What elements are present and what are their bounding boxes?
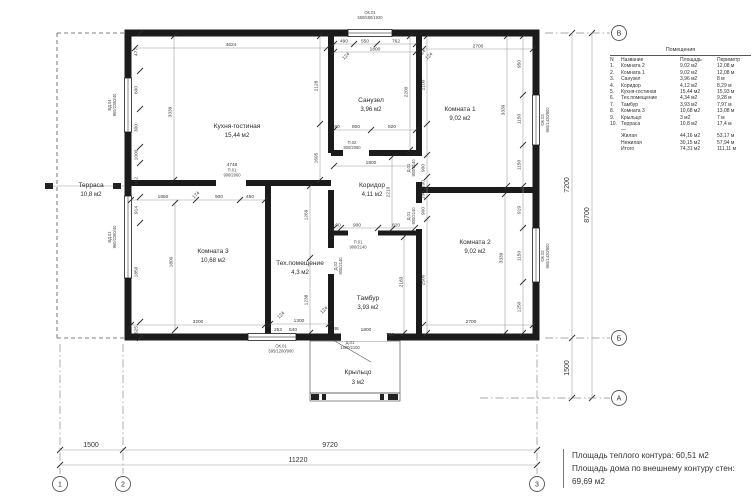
room-label-room1: Комната 1 <box>444 106 476 113</box>
room-label-kitchen: Кухня-гостиная <box>214 123 261 130</box>
dim-label: 914 <box>134 206 140 214</box>
dim-label: 1850 <box>158 194 169 200</box>
cell-room-name: Терраса <box>621 121 680 127</box>
dim-label: 2700 <box>466 319 477 325</box>
dim-label: 762 <box>392 39 400 45</box>
summary-outer-contour: Площадь дома по внешнему контуру стен: 6… <box>572 462 752 488</box>
dim-label: 1250 <box>517 301 523 312</box>
dim-label: 300 <box>134 124 140 132</box>
cell-perimeter: 17,4 м <box>717 121 751 127</box>
dim-label: 1238 <box>304 294 310 305</box>
door-tag: 800/2060 <box>343 145 361 150</box>
cell-total-perimeter: 111,11 м <box>717 146 751 152</box>
dim-label: 4624 <box>226 42 237 48</box>
dim-label: 2183 <box>399 276 405 287</box>
room-label-tambour: Тамбур <box>357 294 380 302</box>
window-tag: 950/1420/900 <box>545 107 550 133</box>
floor-plan-sheet: 1 2 3 В Б А 1500 9720 11220 7200 8700 15… <box>0 0 753 502</box>
cell-total-area: 74,31 м2 <box>680 146 717 152</box>
axis-label: 3 <box>535 482 539 489</box>
dim-label: 1800 <box>361 327 372 333</box>
dim-label: 124 <box>341 51 351 61</box>
dim-label: 900 <box>421 207 427 215</box>
axis-label: 2 <box>121 482 125 489</box>
dim-label: 124 <box>319 305 329 315</box>
dim-label: 1150 <box>517 160 523 171</box>
dim-label: 80 <box>334 124 340 130</box>
room-area-tambour: 3,93 м2 <box>357 304 379 311</box>
dim-label: 2700 <box>473 44 484 50</box>
dim-label: 3339 <box>501 104 507 115</box>
dim-label: 1269 <box>304 209 310 220</box>
dim-label: 1000 <box>134 149 140 160</box>
dim-label: 46 <box>333 326 339 332</box>
overall-dimensions: 1500 9720 11220 7200 8700 1500 <box>83 177 591 464</box>
room-area-kitchen: 15,44 м2 <box>225 132 250 139</box>
room-label-tech: Тех.помещение <box>276 260 324 267</box>
dim-label: 1150 <box>517 114 523 125</box>
dim-label: 9720 <box>322 442 338 449</box>
dim-label: 450 <box>246 194 254 200</box>
axis-label: А <box>617 396 622 403</box>
dim-label: 820 <box>392 223 400 229</box>
area-summary: Площадь теплого контура: 60,51 м2 Площад… <box>563 449 752 488</box>
dim-label: 1300 <box>294 318 305 324</box>
dim-label: 2210 <box>386 186 392 197</box>
dim-label: 1500 <box>83 442 99 449</box>
dim-label: 1800 <box>366 160 377 166</box>
room-label-porch: Крыльцо <box>345 369 372 376</box>
table-total-row: Итого 74,31 м2 111,11 м <box>610 146 751 152</box>
dim-label: 124 <box>276 310 286 320</box>
cell-area: 10,8 м2 <box>680 121 717 127</box>
dim-label: 2200 <box>404 86 410 97</box>
room-label-corridor: Коридор <box>359 182 385 189</box>
door-tag: 800/2140 <box>338 257 343 275</box>
dim-label: 1500 <box>564 360 571 376</box>
dim-label: 3339 <box>168 106 174 117</box>
door-tag: 900/2140 <box>411 159 416 177</box>
axis-label: 1 <box>58 482 62 489</box>
cell-total-name: Итого <box>621 146 680 152</box>
room-area-porch: 3 м2 <box>352 379 365 386</box>
room-schedule-table: Помещения N Название Площадь Периметр 1.… <box>610 47 751 153</box>
dim-label: 2128 <box>314 80 320 91</box>
dim-label: 950 <box>517 60 523 68</box>
dim-label: 1800 <box>169 256 175 267</box>
room-area-room2: 9,02 м2 <box>464 248 486 255</box>
dim-label: 2100 <box>421 79 427 90</box>
dim-label: 90 <box>335 223 341 229</box>
room-label-bath: Санузел <box>358 97 384 104</box>
room-area-bath: 3,96 м2 <box>360 106 382 113</box>
dim-label: 800 <box>352 124 360 130</box>
dim-label: 919 <box>517 206 523 214</box>
dim-label: 550 <box>361 39 369 45</box>
cell-number: 10. <box>610 121 621 127</box>
door-tag: 900/2060 <box>223 173 241 178</box>
room-label-room3: Комната 3 <box>197 248 229 255</box>
room-area-tech: 4,3 м2 <box>291 269 309 276</box>
dim-label: 1850 <box>134 266 140 277</box>
dim-label: 1150 <box>517 251 523 262</box>
dim-label: 162 <box>134 177 140 185</box>
door-tag: 900/2140 <box>349 245 367 250</box>
dim-label: 1695 <box>314 152 320 163</box>
dim-label: 8700 <box>584 207 591 223</box>
door-tag: 1600/2100 <box>340 345 360 350</box>
table-totals: Жилая 44,16 м2 53,17 м Нежилая 30,15 м2 … <box>610 133 751 152</box>
dim-label: 7200 <box>564 177 571 193</box>
door-tag: 960/2280/40 <box>112 93 117 116</box>
window-tag: 950/1420/900 <box>545 243 550 269</box>
axis-label: Б <box>617 336 622 343</box>
dim-label: 477 <box>134 48 140 56</box>
room-area-room1: 9,02 м2 <box>449 115 471 122</box>
dim-label: 490 <box>340 39 348 45</box>
dim-label: 540 <box>289 327 297 333</box>
dim-label: 900 <box>215 194 223 200</box>
dimension-lines <box>57 30 595 468</box>
dim-label: 252 <box>274 327 282 333</box>
dim-label: 625 <box>134 326 140 334</box>
dim-label: 174 <box>191 190 201 200</box>
dim-label: 920 <box>388 124 396 130</box>
room-area-corridor: 4,11 м2 <box>362 191 383 198</box>
room-label-terrace: Терраса <box>78 182 104 189</box>
dim-label: 2500 <box>421 274 427 285</box>
dim-label: 100 <box>421 191 427 199</box>
dim-label: 11220 <box>289 457 308 464</box>
table-row: 10. Терраса 10,8 м2 17,4 м <box>610 121 751 127</box>
dim-label: 1800 <box>370 47 381 53</box>
dim-label: 600 <box>134 86 140 94</box>
room-area-terrace: 10,8 м2 <box>80 191 102 198</box>
walls <box>128 33 536 337</box>
axis-label: В <box>617 31 622 38</box>
door-tag: 900/2140 <box>411 207 416 225</box>
door-tag: 960/2280/40 <box>112 225 117 248</box>
dim-label: 3339 <box>499 252 505 263</box>
dim-label: 3200 <box>193 319 204 325</box>
dim-label: 900 <box>421 164 427 172</box>
window-tag: 550/580/1920 <box>357 15 383 20</box>
room-area-room3: 10,68 м2 <box>201 257 226 264</box>
dim-label: 762 <box>386 332 394 338</box>
summary-warm-contour: Площадь теплого контура: 60,51 м2 <box>572 449 752 462</box>
dim-label: 100 <box>421 180 427 188</box>
dim-label: 900 <box>353 223 361 229</box>
table-body: 1. Комната 2 9,02 м2 12,08 м 2. Комната … <box>610 63 751 127</box>
room-label-room2: Комната 2 <box>459 239 491 246</box>
window-tag: 595/1200/900 <box>268 349 294 354</box>
table-title: Помещения <box>610 47 751 56</box>
